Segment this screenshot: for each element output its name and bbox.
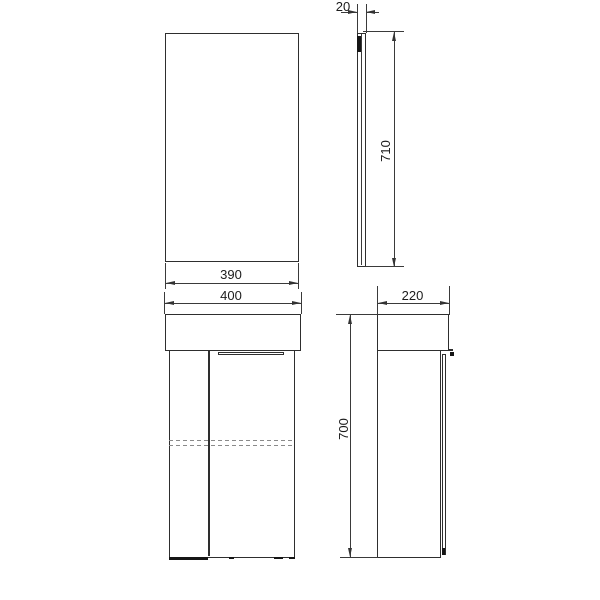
cabinet-side-handle-notch xyxy=(450,352,454,356)
dim-710-ext-top xyxy=(363,31,404,32)
dim-400-arrow-right xyxy=(292,301,301,305)
dim-390-ext-right xyxy=(298,263,299,289)
dim-20-arrow-right xyxy=(366,10,375,14)
dim-710-ext-bottom xyxy=(365,266,404,267)
dim-220-label: 220 xyxy=(393,289,433,303)
cabinet-front-plinth xyxy=(169,557,209,560)
cabinet-side-door-foot xyxy=(442,548,445,555)
dim-700-ext-bottom xyxy=(340,557,378,558)
dim-220-line xyxy=(377,303,449,304)
dim-700-arrow-top xyxy=(348,315,352,324)
hidden-shelf-line-lower xyxy=(169,445,295,446)
mirror-front-panel xyxy=(165,33,299,262)
dim-20-ext-right xyxy=(366,4,367,33)
dim-710-arrow-bottom xyxy=(392,258,396,267)
dim-700-label: 700 xyxy=(337,414,351,444)
dim-710-line xyxy=(394,32,395,266)
cabinet-front-countertop xyxy=(165,314,301,351)
mirror-side-glass-line xyxy=(361,34,362,265)
mirror-side-bracket xyxy=(357,36,361,52)
cabinet-front-foot-3 xyxy=(289,557,296,559)
dim-400-line xyxy=(164,303,301,304)
cabinet-side-body xyxy=(377,350,441,558)
dim-390-arrow-left xyxy=(166,281,175,285)
technical-drawing-canvas: 390 400 20 710 220 700 xyxy=(0,0,600,600)
cabinet-front-door-divider xyxy=(208,351,210,556)
dim-710-label: 710 xyxy=(379,136,393,166)
dim-220-arrow-right xyxy=(440,301,449,305)
dim-400-arrow-left xyxy=(165,301,174,305)
dim-400-label: 400 xyxy=(211,289,251,303)
cabinet-side-door-panel xyxy=(442,354,446,555)
cabinet-front-handle-groove xyxy=(218,352,284,356)
cabinet-front-foot-2 xyxy=(274,557,283,559)
dim-390-arrow-right xyxy=(289,281,298,285)
cabinet-front-body xyxy=(169,350,296,558)
dim-710-arrow-top xyxy=(392,32,396,41)
hidden-shelf-line-upper xyxy=(169,440,295,441)
dim-390-ext-left xyxy=(165,263,166,289)
dim-390-line xyxy=(166,283,299,284)
dim-220-arrow-left xyxy=(378,301,387,305)
dim-20-label: 20 xyxy=(330,0,356,14)
cabinet-side-countertop-overhang xyxy=(449,349,454,351)
dim-220-ext-right xyxy=(449,286,450,315)
cabinet-front-foot-1 xyxy=(229,557,235,560)
cabinet-side-countertop xyxy=(377,314,449,351)
dim-700-ext-top xyxy=(336,314,378,315)
dim-20-ext-left xyxy=(357,4,358,33)
dim-390-label: 390 xyxy=(211,268,251,282)
dim-700-arrow-bottom xyxy=(348,548,352,557)
